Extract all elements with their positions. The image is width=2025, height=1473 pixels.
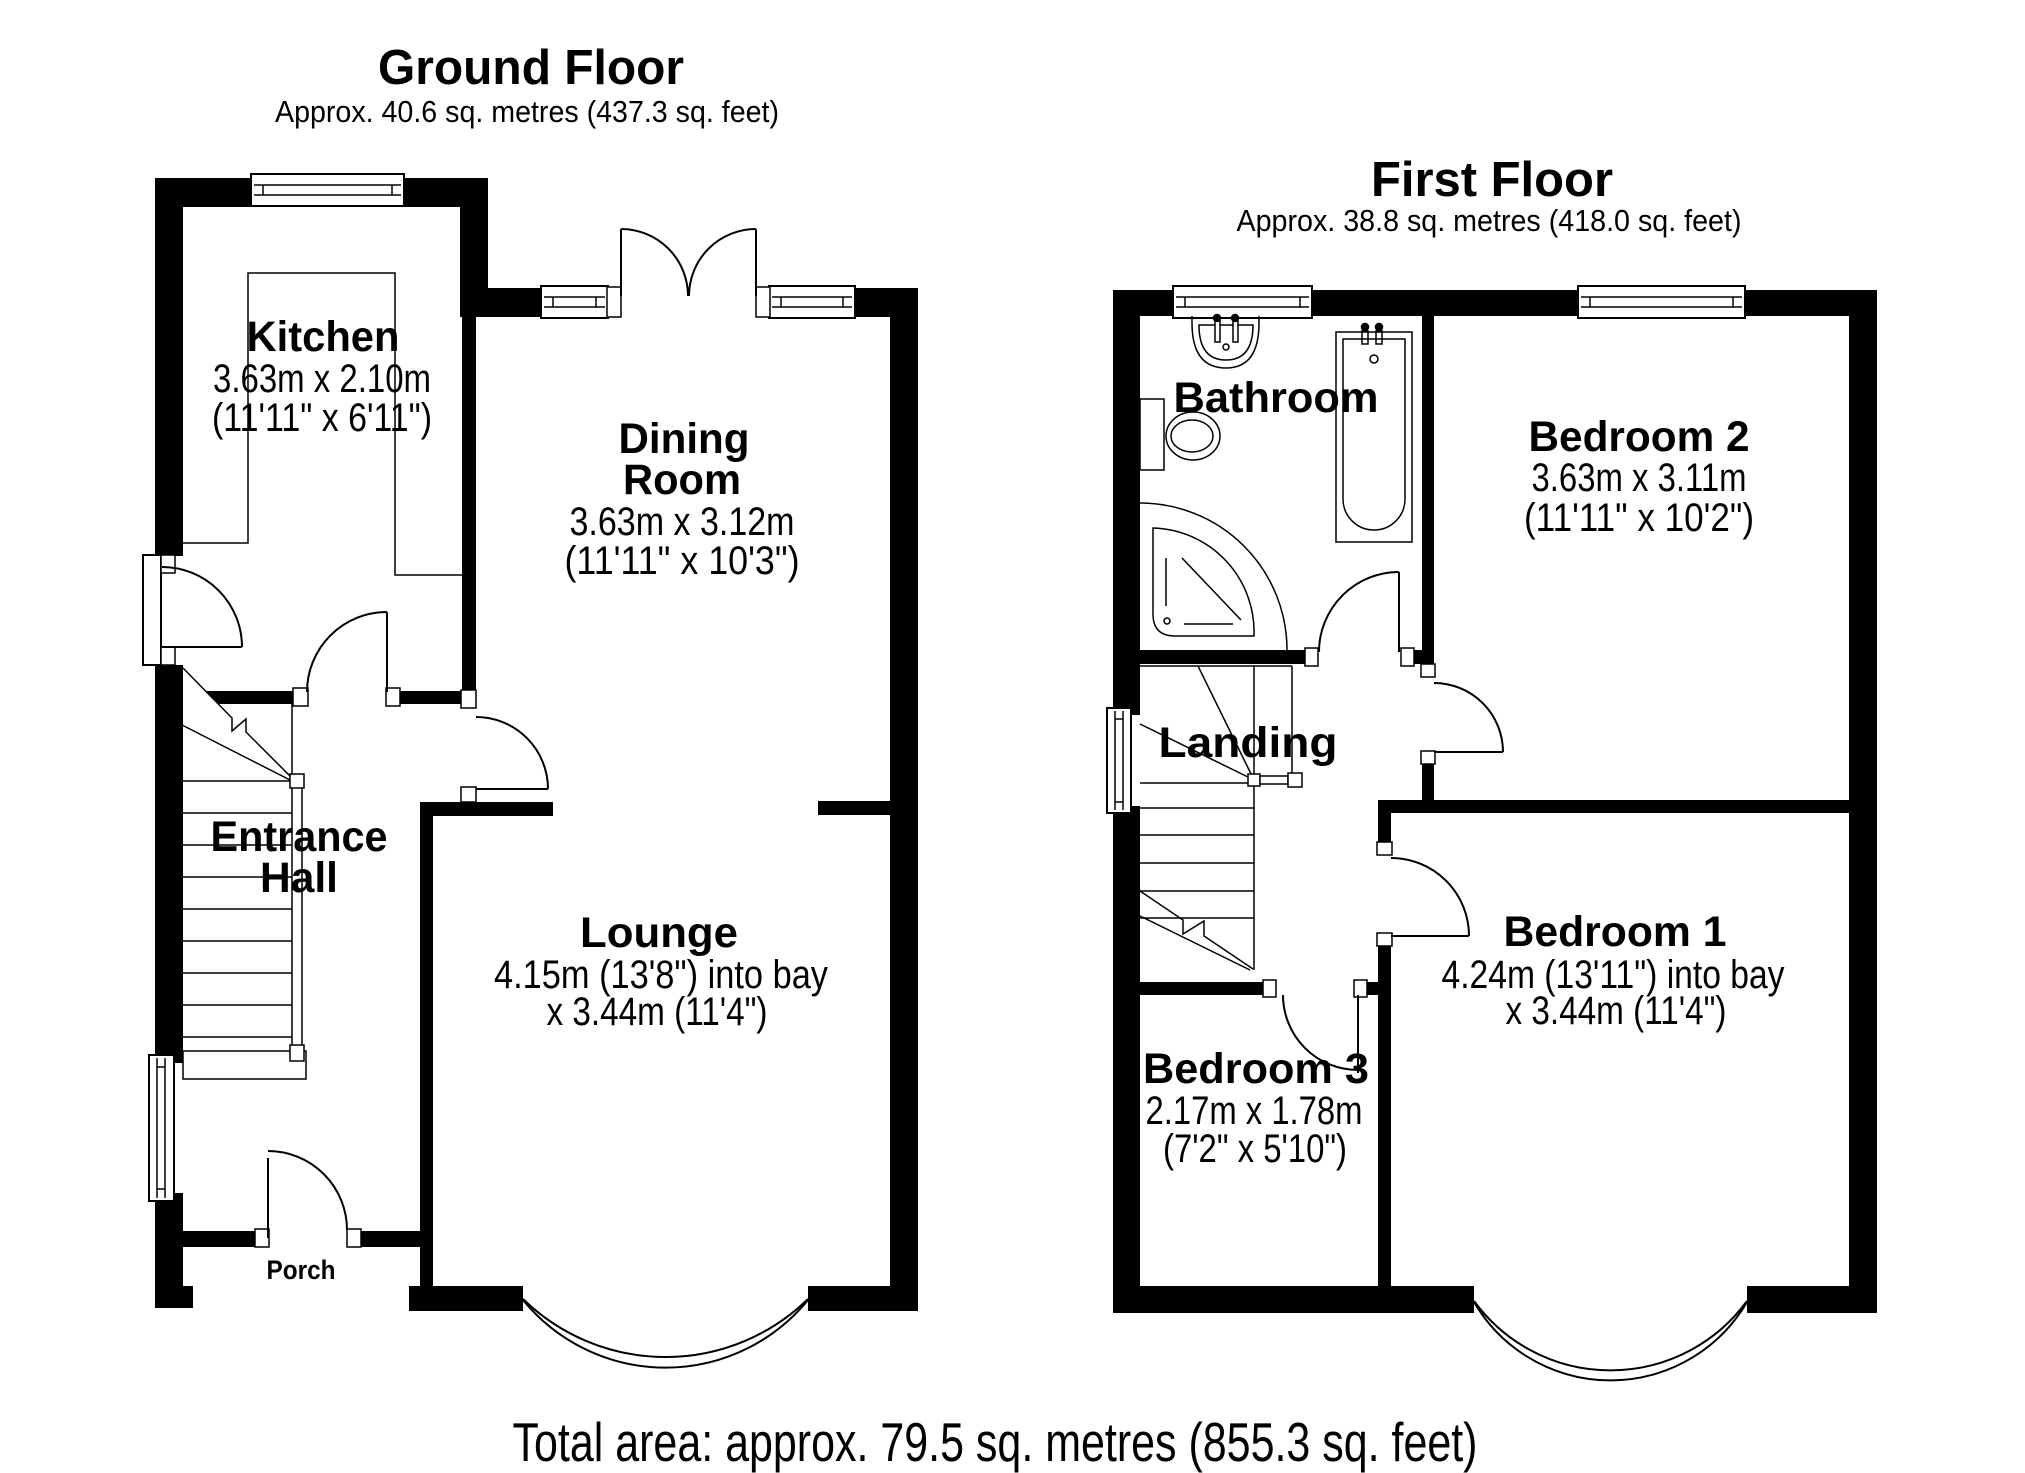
svg-text:Approx. 40.6 sq. metres (437.3: Approx. 40.6 sq. metres (437.3 sq. feet) (275, 94, 779, 129)
svg-text:Ground Floor: Ground Floor (378, 41, 684, 95)
svg-text:Landing: Landing (1159, 719, 1338, 767)
svg-text:Lounge: Lounge (580, 909, 738, 957)
svg-text:(11'11" x 10'3"): (11'11" x 10'3") (565, 539, 800, 583)
svg-text:Porch: Porch (267, 1255, 336, 1285)
svg-text:(11'11" x 10'2"): (11'11" x 10'2") (1524, 496, 1754, 540)
svg-text:3.63m x 3.11m: 3.63m x 3.11m (1532, 456, 1747, 500)
svg-text:3.63m x 3.12m: 3.63m x 3.12m (570, 500, 795, 544)
svg-text:Bathroom: Bathroom (1174, 374, 1379, 422)
svg-text:Bedroom 3: Bedroom 3 (1143, 1045, 1369, 1093)
svg-text:Total area: approx. 79.5 sq. m: Total area: approx. 79.5 sq. metres (855… (513, 1411, 1478, 1473)
svg-text:x 3.44m (11'4"): x 3.44m (11'4") (547, 990, 768, 1034)
svg-text:Hall: Hall (260, 854, 338, 902)
svg-text:Kitchen: Kitchen (247, 313, 400, 361)
svg-text:3.63m x 2.10m: 3.63m x 2.10m (213, 357, 431, 401)
svg-text:(7'2" x 5'10"): (7'2" x 5'10") (1163, 1127, 1347, 1171)
svg-text:Bedroom 1: Bedroom 1 (1504, 908, 1727, 956)
svg-text:Approx. 38.8 sq. metres (418.0: Approx. 38.8 sq. metres (418.0 sq. feet) (1237, 203, 1742, 238)
svg-text:x 3.44m (11'4"): x 3.44m (11'4") (1506, 989, 1727, 1033)
svg-text:Bedroom 2: Bedroom 2 (1529, 413, 1750, 461)
svg-text:First Floor: First Floor (1371, 153, 1613, 207)
svg-text:(11'11" x 6'11"): (11'11" x 6'11") (212, 396, 432, 440)
svg-text:Room: Room (623, 456, 741, 504)
